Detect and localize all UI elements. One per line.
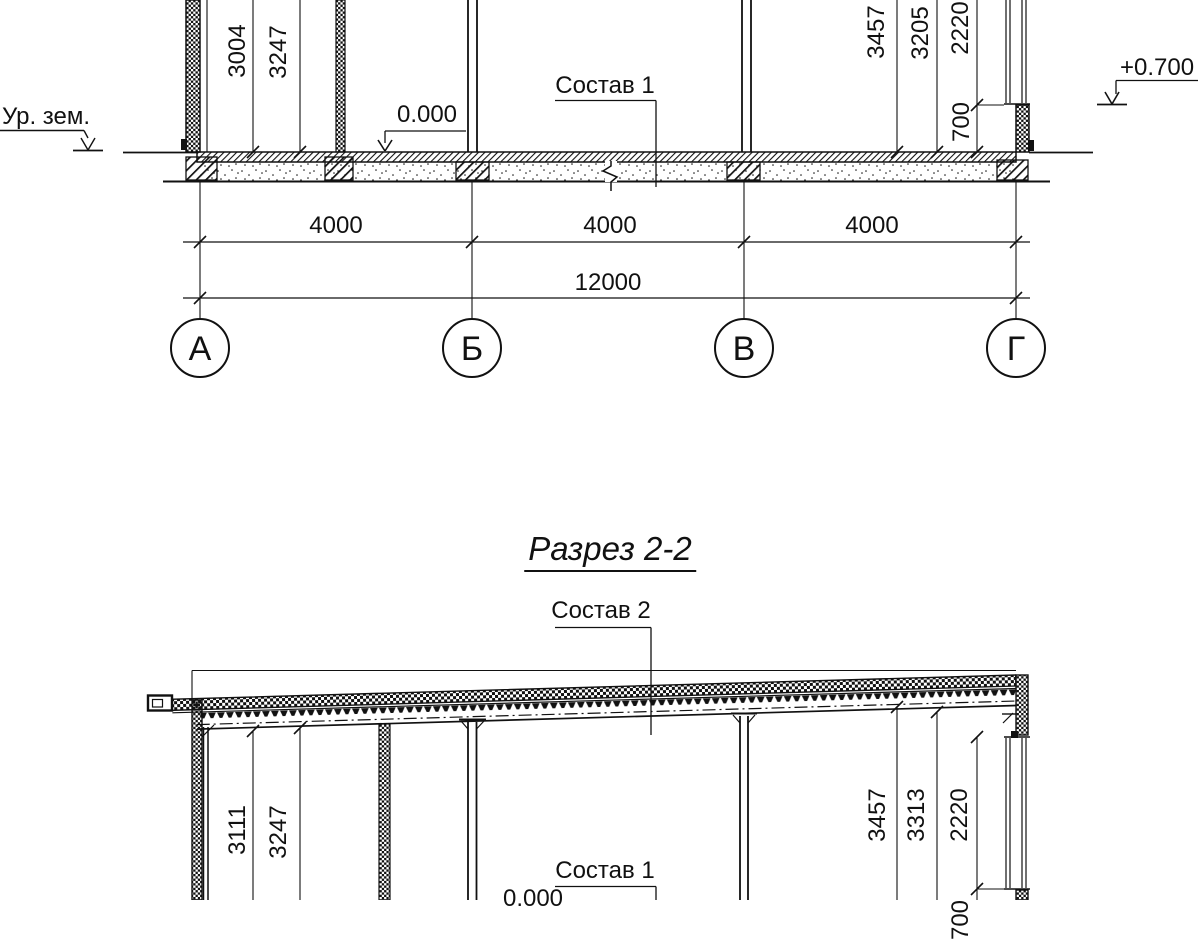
section-title: Разрез 2-2 — [524, 532, 696, 572]
elev-zero-mark — [378, 131, 466, 151]
total-dim: 12000 — [575, 271, 642, 295]
span-dim-2: 4000 — [583, 214, 636, 238]
right-wall-upper — [1016, 675, 1028, 735]
window-right — [1004, 0, 1030, 104]
drawing-canvas — [0, 0, 1200, 900]
footing-column-v — [727, 162, 760, 180]
axis-label-b: Б — [461, 332, 483, 366]
dim-3457-b: 3457 — [866, 788, 890, 841]
footing-right — [997, 160, 1028, 180]
ground-level-label: Ур. зем. — [2, 105, 90, 129]
dim-3247: 3247 — [267, 25, 291, 78]
footing-column-b — [456, 162, 489, 180]
right-wall-sill — [1016, 890, 1028, 900]
partition-wall — [379, 724, 390, 900]
axis-label-a: А — [189, 332, 212, 366]
eaves-detail — [148, 696, 172, 711]
right-ceiling-joint — [1002, 713, 1016, 723]
dim-3111: 3111 — [226, 805, 250, 855]
sostav1-label-b: Состав 1 — [555, 859, 655, 883]
roof-assembly — [170, 675, 1017, 730]
left-wall — [186, 0, 200, 152]
partition-wall — [336, 0, 345, 152]
column-v — [731, 714, 757, 901]
dim-3205: 3205 — [909, 6, 933, 59]
dim-3457: 3457 — [865, 5, 889, 58]
dim-700-b: 700 — [949, 900, 973, 940]
ground-level-mark — [0, 131, 103, 151]
sostav1-leader — [555, 887, 656, 901]
drawing-sheet: Ур. зем. 3004 3247 0.000 Состав 1 3457 3… — [0, 0, 1200, 900]
column-b — [459, 720, 486, 901]
elev-zero-label: 0.000 — [397, 103, 457, 127]
axis-label-v: В — [733, 332, 756, 366]
span-dim-1: 4000 — [309, 214, 362, 238]
dim-3004: 3004 — [226, 24, 250, 77]
section-1 — [0, 0, 1198, 377]
axis-bubbles — [171, 319, 1045, 377]
elev-top-label: +0.700 — [1120, 56, 1194, 80]
column-v — [742, 0, 751, 152]
dim-2220-b: 2220 — [948, 788, 972, 841]
elev-zero-label-b: 0.000 — [503, 887, 563, 911]
dim-2220: 2220 — [949, 1, 973, 54]
elev-top-mark — [1097, 81, 1198, 105]
footing-partition — [325, 157, 353, 180]
dim-3313: 3313 — [905, 788, 929, 841]
right-wall — [1016, 105, 1029, 152]
sostav2-label: Состав 2 — [551, 599, 651, 623]
left-column — [202, 725, 214, 900]
floor-slab — [163, 152, 1050, 191]
column-b — [468, 0, 477, 152]
dim-3247-b: 3247 — [267, 805, 291, 858]
dim-ticks — [247, 99, 983, 158]
left-wall-ledge — [181, 139, 187, 150]
sostav1-label: Состав 1 — [555, 74, 655, 98]
dim-700: 700 — [950, 102, 974, 142]
left-wall — [192, 700, 202, 900]
axis-label-g: Г — [1007, 332, 1025, 366]
span-dim-3: 4000 — [845, 214, 898, 238]
right-wall-ledge — [1028, 140, 1034, 151]
window-right — [1004, 737, 1030, 889]
footing-left — [186, 157, 217, 180]
